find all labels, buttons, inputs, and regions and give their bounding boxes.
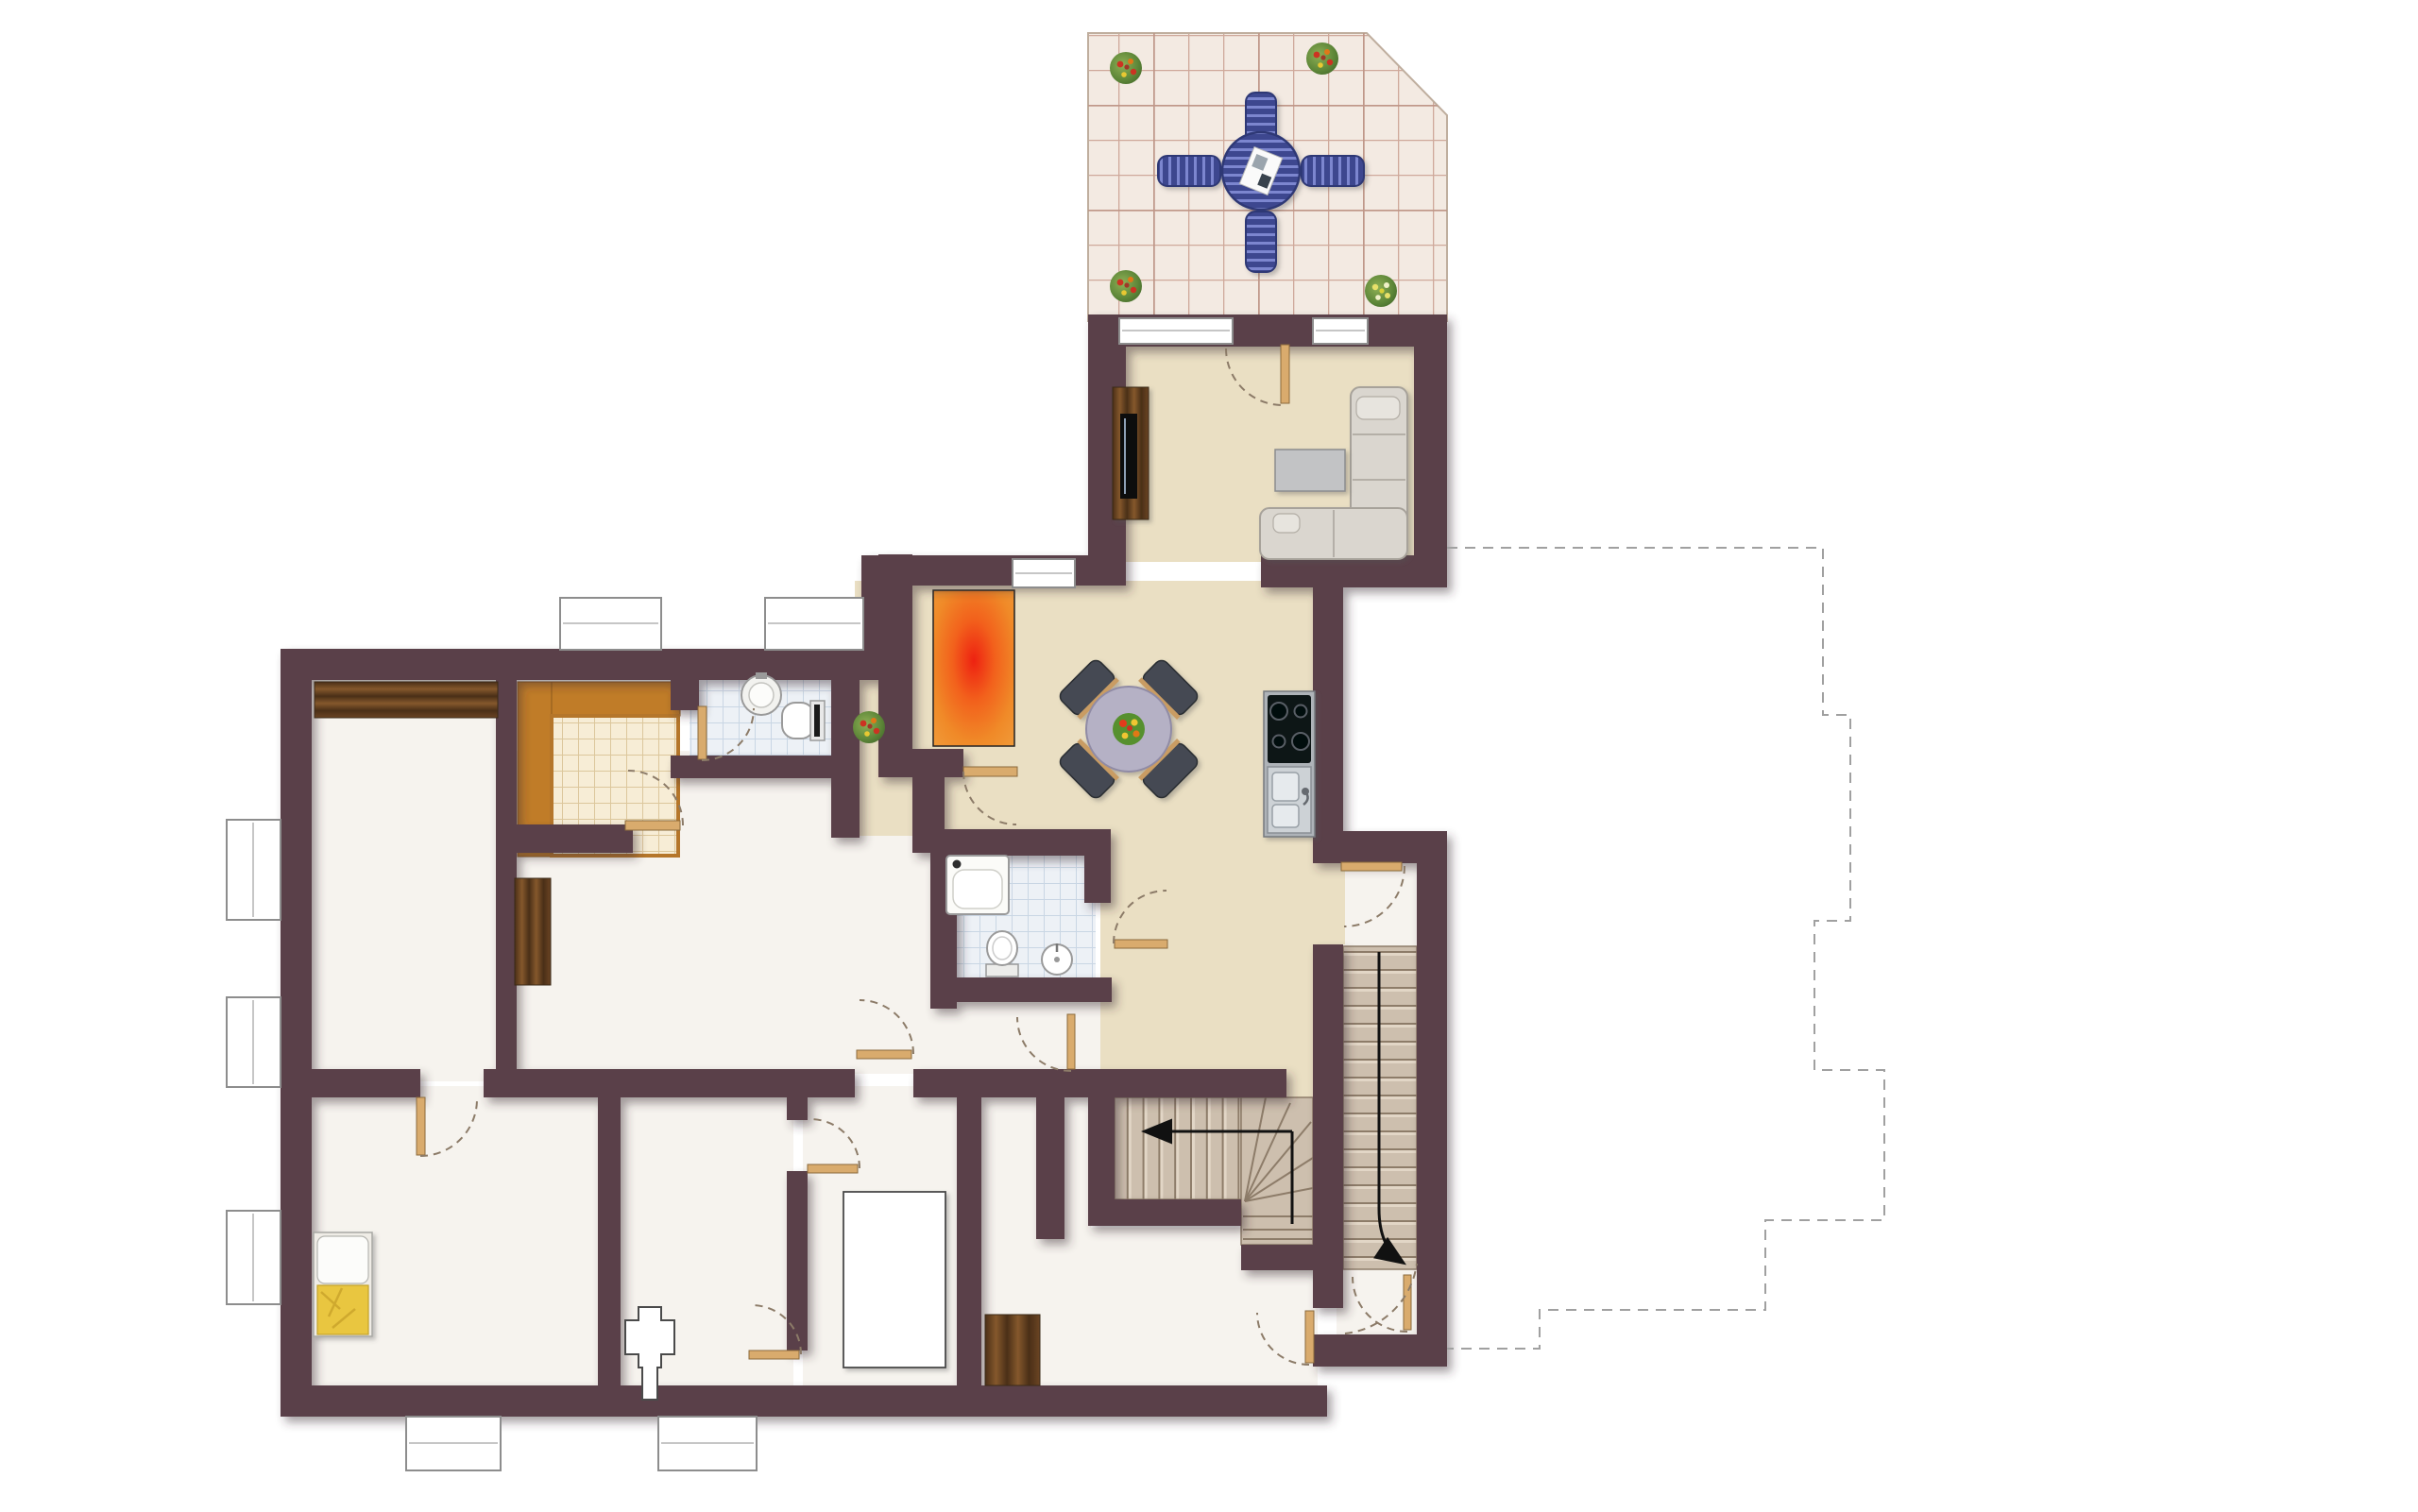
door-bedroom2	[417, 1097, 425, 1155]
patio-chair-south	[1246, 212, 1276, 272]
door-pocket-south	[857, 1050, 911, 1059]
cabinet-white	[843, 1192, 945, 1368]
door-storage	[963, 767, 1017, 776]
floorplan-page: Apartment floor plan - ground floor Rend…	[0, 0, 2418, 1512]
table-bouquet	[1113, 713, 1145, 745]
door-terrace	[1281, 345, 1289, 403]
floorplan-drawing: Rendered architectural floor plan: tiled…	[0, 0, 2418, 1512]
floor-doorway-landing	[1311, 861, 1345, 944]
window-terrace-left	[1119, 318, 1233, 344]
floor-hall-east	[1100, 836, 1318, 1072]
bed	[314, 1232, 372, 1336]
door-apartment-entry	[1341, 862, 1402, 871]
door-wc	[698, 706, 707, 759]
storage-rug	[930, 587, 1017, 750]
door-room-cabinet	[808, 1164, 858, 1173]
floor-doorway-winder	[1285, 1067, 1315, 1101]
plant-terrace-1	[1110, 52, 1142, 84]
bathtub	[946, 856, 1009, 914]
window-terrace-right	[1313, 318, 1368, 344]
window-storage	[1013, 559, 1075, 587]
door-landing-bottom	[1404, 1275, 1411, 1330]
window-bottom-2	[658, 1417, 757, 1470]
window-bottom-1	[406, 1417, 501, 1470]
door-pantry	[625, 821, 680, 830]
plant-terrace-3	[1110, 270, 1142, 302]
plant-terrace-2	[1306, 42, 1338, 75]
patio-chair-west	[1158, 156, 1220, 186]
tv	[1120, 414, 1137, 499]
wardrobe-top-left	[315, 682, 498, 718]
kitchen-sink	[1268, 767, 1311, 833]
bath-sink	[1042, 943, 1072, 975]
plant-hallway	[853, 711, 885, 743]
door-bathroom	[1115, 940, 1167, 948]
coffee-table	[1275, 450, 1345, 491]
bath-toilet	[986, 931, 1018, 977]
kitchenette	[1264, 691, 1315, 837]
tv-board	[1113, 387, 1149, 519]
wc-toilet	[782, 701, 825, 740]
patio-chair-east	[1302, 156, 1364, 186]
window-left-1	[227, 820, 281, 920]
window-top-1	[560, 598, 661, 650]
floor-pocket-west	[831, 826, 943, 1074]
wardrobe-hall	[515, 878, 551, 985]
window-top-2	[765, 598, 863, 650]
adjacent-building-outline	[1447, 548, 1884, 1349]
window-left-2	[227, 997, 281, 1087]
door-room5	[1305, 1311, 1314, 1363]
plant-terrace-4	[1365, 275, 1397, 307]
door-pocket-east	[1067, 1014, 1075, 1069]
wood-strip-corridor	[985, 1315, 1040, 1385]
blanket	[317, 1285, 368, 1334]
floor-bedroom-top-left	[312, 666, 501, 1081]
door-room-center	[749, 1351, 799, 1359]
window-left-3	[227, 1211, 281, 1304]
pillow	[317, 1236, 368, 1283]
